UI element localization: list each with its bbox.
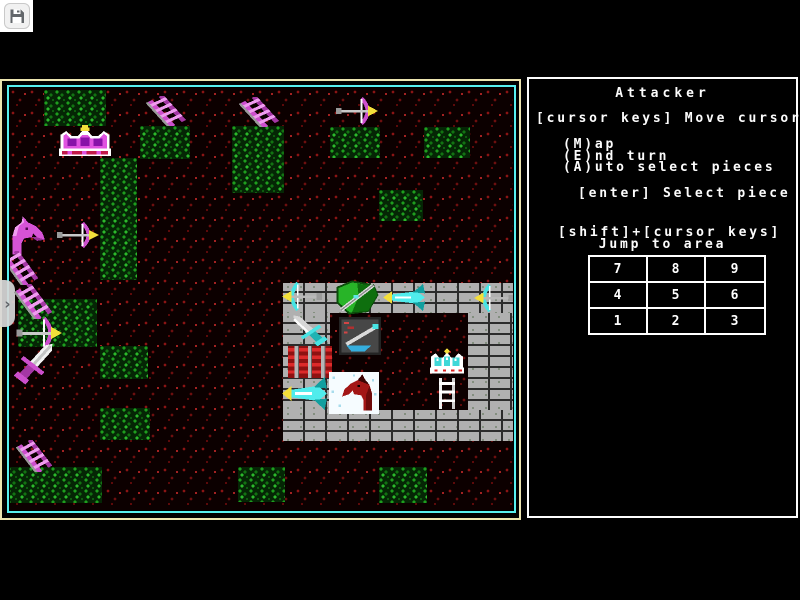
select-piece-hint: [enter] Select piece	[578, 186, 791, 201]
jump-area-cell: 9	[706, 257, 764, 283]
jump-area-cell: 7	[590, 257, 648, 283]
hotkey-menu: (M)ap(E)nd turn(A)uto select pieces	[563, 139, 776, 174]
castle-wall	[283, 410, 513, 441]
piece-shield-green[interactable]	[332, 279, 380, 316]
screen: Attacker [cursor keys] Move cursor (M)ap…	[0, 0, 800, 600]
piece-ladder-white[interactable]	[437, 378, 457, 409]
piece-ladder-magenta[interactable]	[14, 284, 54, 319]
game-screen: Attacker [cursor keys] Move cursor (M)ap…	[0, 76, 800, 524]
piece-ladder-magenta[interactable]	[146, 96, 188, 126]
jump-area-cell: 1	[590, 309, 648, 333]
piece-crown-magenta[interactable]	[56, 125, 114, 157]
piece-bow-cyan-left[interactable]	[282, 281, 324, 312]
piece-crown-cyan[interactable]	[428, 348, 466, 378]
forest-tile	[100, 158, 137, 280]
save-button-backdrop	[0, 0, 33, 32]
piece-ladder-magenta[interactable]	[10, 251, 40, 285]
piece-bow-magenta-right[interactable]	[334, 96, 378, 126]
jump-area-cell: 6	[706, 283, 764, 309]
jump-area-cell: 3	[706, 309, 764, 333]
piece-gate-red[interactable]	[288, 346, 332, 378]
piece-bow-magenta-right[interactable]	[55, 221, 99, 249]
piece-sword-gray-cyan[interactable]	[285, 311, 333, 349]
jump-area-cell: 4	[590, 283, 648, 309]
forest-tile	[10, 467, 102, 503]
jump-area-cell: 5	[648, 283, 706, 309]
forest-tile	[100, 346, 148, 379]
save-button[interactable]	[4, 3, 30, 29]
jump-area-cell: 8	[648, 257, 706, 283]
forest-tile	[379, 467, 427, 503]
jump-hint-label: Jump to area	[529, 237, 796, 252]
jump-area-cell: 2	[648, 309, 706, 333]
jump-area-grid: 789456123	[588, 255, 766, 335]
forest-tile	[424, 127, 470, 158]
forest-tile	[100, 408, 150, 440]
chevron-right-icon: ›	[4, 295, 10, 313]
forest-tile	[379, 190, 423, 221]
piece-horse-red-tile[interactable]	[329, 372, 379, 414]
cursor-keys-hint: [cursor keys] Move cursor	[536, 111, 800, 126]
forest-tile	[330, 127, 380, 158]
piece-winged-arrow-cyan-left[interactable]	[282, 377, 329, 410]
forest-tile	[238, 467, 285, 502]
piece-ladder-magenta[interactable]	[239, 97, 281, 127]
info-panel: Attacker [cursor keys] Move cursor (M)ap…	[527, 77, 798, 518]
forest-tile	[232, 126, 284, 193]
hotkey-menu-item: (A)uto select pieces	[563, 162, 776, 174]
piece-bow-cyan-left[interactable]	[474, 283, 513, 313]
floppy-disk-icon	[8, 7, 26, 25]
forest-tile	[140, 126, 190, 159]
sidebar-expand-tab[interactable]: ›	[0, 280, 15, 327]
piece-winged-arrow-cyan-left[interactable]	[383, 284, 427, 311]
piece-sword-magenta[interactable]	[10, 338, 62, 388]
piece-sword-emblem-tile[interactable]	[339, 317, 381, 355]
battle-map	[10, 88, 513, 510]
panel-title: Attacker	[529, 86, 796, 101]
piece-ladder-magenta[interactable]	[16, 440, 54, 472]
castle-wall	[468, 313, 513, 410]
forest-tile	[44, 90, 106, 126]
